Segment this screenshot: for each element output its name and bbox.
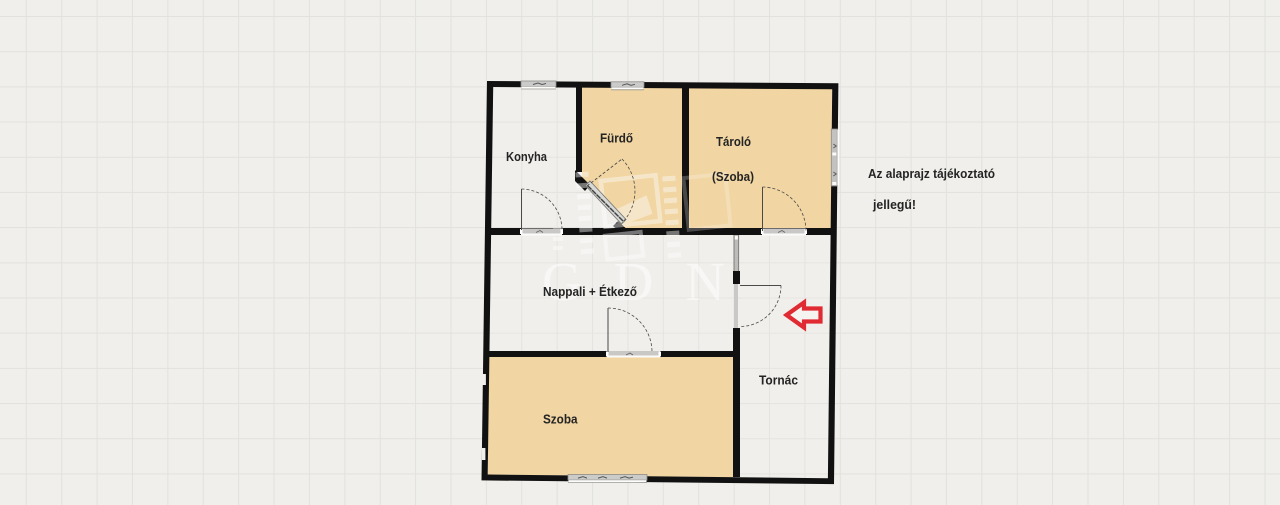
- svg-text:Szoba: Szoba: [543, 412, 578, 427]
- svg-text:(Szoba): (Szoba): [712, 169, 754, 184]
- svg-text:Tornác: Tornác: [759, 373, 798, 388]
- svg-text:Nappali + Étkező: Nappali + Étkező: [543, 284, 637, 299]
- svg-text:Konyha: Konyha: [506, 149, 548, 164]
- svg-text:GDN: GDN: [542, 251, 725, 312]
- svg-text:jellegű!: jellegű!: [872, 197, 916, 212]
- svg-text:Tároló: Tároló: [716, 134, 751, 149]
- svg-text:Az alaprajz tájékoztató: Az alaprajz tájékoztató: [868, 166, 995, 181]
- svg-text:Fürdő: Fürdő: [600, 131, 633, 146]
